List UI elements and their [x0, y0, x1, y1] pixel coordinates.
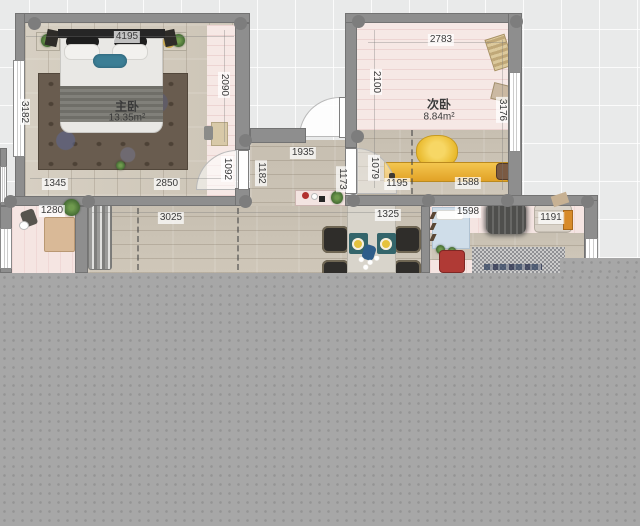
wall-node[interactable] — [347, 194, 360, 207]
dimension-label[interactable]: 1598 — [455, 206, 481, 218]
floorplan-editor: 4195 3182 2090 1345 2850 1092 1182 1935 … — [0, 0, 640, 526]
dimension-label[interactable]: 1935 — [290, 147, 316, 159]
wall-node[interactable] — [510, 15, 523, 28]
window-outer-left-2[interactable] — [0, 228, 12, 269]
partial-cropped-label — [484, 264, 542, 270]
wall-master-right-upper[interactable] — [235, 23, 250, 150]
room-area-master: 13.35m² — [109, 113, 146, 124]
room-area-secondary: 8.84m² — [423, 112, 454, 123]
wall-entry-south[interactable] — [250, 128, 306, 143]
wall-node[interactable] — [28, 17, 41, 30]
clothes-rack[interactable] — [88, 204, 112, 270]
dimension-label[interactable]: 1182 — [255, 160, 267, 186]
wall-secondary-left[interactable] — [345, 13, 357, 148]
window-study-right[interactable] — [585, 238, 598, 260]
dimension-label[interactable]: 1191 — [538, 212, 564, 224]
wall-balcony-divider[interactable] — [75, 206, 88, 273]
dimension-label[interactable]: 4195 — [114, 31, 140, 43]
console-box — [319, 196, 325, 202]
wall-node[interactable] — [422, 194, 435, 207]
closet-divider-dashed-2 — [237, 208, 239, 270]
plant-floor[interactable] — [116, 161, 125, 170]
dim-line — [92, 212, 422, 213]
dimension-label[interactable]: 1345 — [42, 178, 68, 190]
dining-chair-3[interactable] — [394, 226, 421, 253]
master-door-leaf[interactable] — [238, 150, 249, 190]
plate-left — [352, 238, 364, 250]
dining-chair-1[interactable] — [322, 226, 349, 253]
small-chair[interactable] — [204, 126, 213, 140]
dimension-label[interactable]: 1092 — [221, 156, 233, 182]
area-divider-dashed — [411, 130, 413, 194]
orange-cushion — [563, 210, 573, 230]
dimension-label[interactable]: 1588 — [455, 177, 481, 189]
dimension-label[interactable]: 1280 — [39, 205, 65, 217]
console-flower — [302, 192, 309, 199]
cropped-area-overlay — [0, 273, 640, 526]
window-secondary-right[interactable] — [509, 72, 521, 152]
dimension-label[interactable]: 2090 — [218, 72, 230, 98]
dimension-label[interactable]: 3025 — [158, 212, 184, 224]
wall-node[interactable] — [234, 17, 247, 30]
balcony-plant[interactable] — [63, 199, 80, 216]
red-chair[interactable] — [439, 250, 465, 273]
lamp-base — [19, 221, 29, 230]
wall-node[interactable] — [352, 15, 365, 28]
dimension-label[interactable]: 1173 — [336, 166, 348, 192]
dimension-label[interactable]: 1079 — [368, 155, 380, 181]
wall-node[interactable] — [239, 134, 252, 147]
balcony-table[interactable] — [44, 217, 75, 252]
pillow-teal — [93, 54, 127, 68]
dimension-label[interactable]: 1195 — [384, 178, 410, 190]
wall-dining-divider[interactable] — [421, 206, 430, 273]
dimension-label[interactable]: 2100 — [370, 69, 382, 95]
wall-node[interactable] — [239, 195, 252, 208]
console-plant — [331, 191, 343, 204]
room-label-secondary[interactable]: 次卧 — [427, 96, 451, 113]
wall-node[interactable] — [351, 130, 364, 143]
wall-master-bottom[interactable] — [0, 196, 250, 206]
dimension-label[interactable]: 2850 — [154, 178, 180, 190]
dimension-label[interactable]: 3182 — [18, 99, 30, 125]
console-cup — [311, 193, 318, 200]
entry-door-leaf[interactable] — [339, 97, 346, 138]
plate-right — [380, 238, 392, 250]
table-flowers — [358, 256, 380, 270]
small-desk[interactable] — [211, 122, 228, 146]
dimension-label[interactable]: 3176 — [496, 97, 508, 123]
wall-node[interactable] — [82, 195, 95, 208]
dimension-label[interactable]: 1325 — [375, 209, 401, 221]
closet-divider-dashed-1 — [137, 208, 139, 270]
wall-secondary-top[interactable] — [345, 13, 520, 23]
wall-node[interactable] — [501, 194, 514, 207]
wall-node[interactable] — [581, 195, 594, 208]
dimension-label[interactable]: 2783 — [428, 34, 454, 46]
wall-node[interactable] — [4, 195, 17, 208]
wall-master-top[interactable] — [15, 13, 250, 23]
fuzzy-rug[interactable] — [486, 203, 526, 234]
